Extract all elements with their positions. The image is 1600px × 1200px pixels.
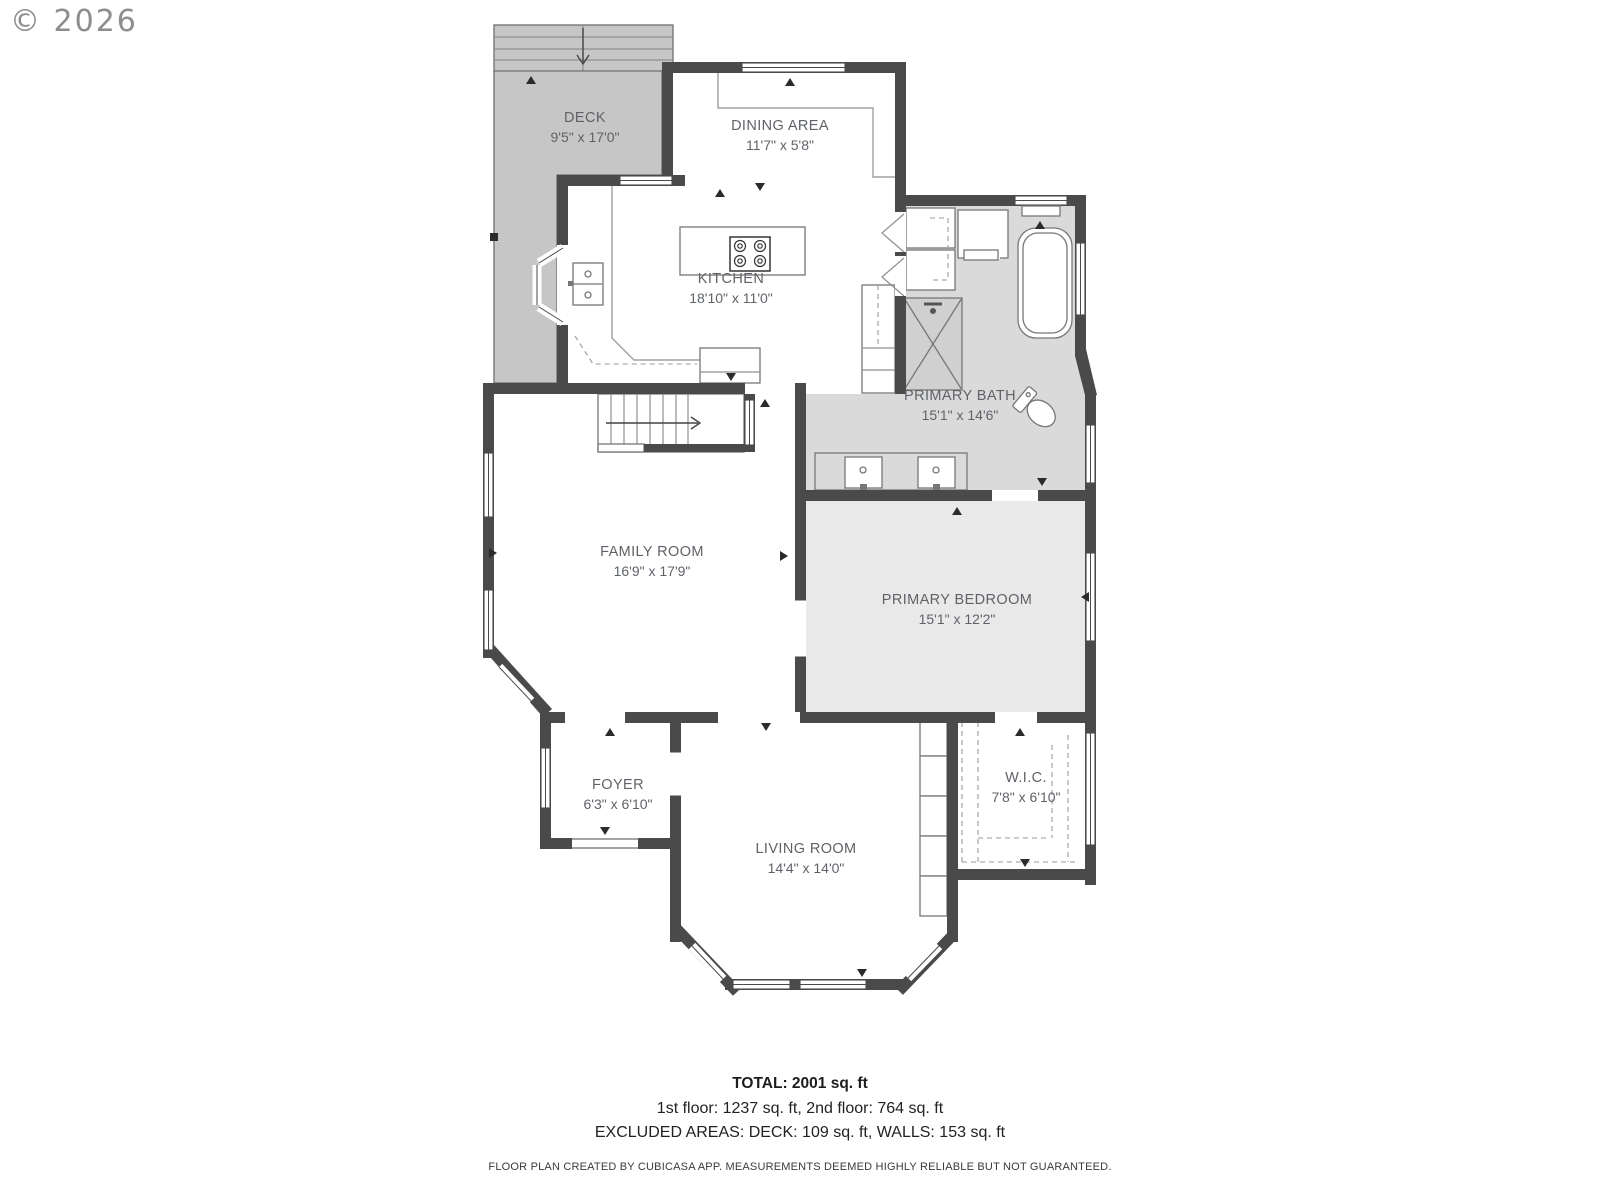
- room-name: DINING AREA: [731, 118, 829, 134]
- total-area: TOTAL: 2001 sq. ft: [0, 1075, 1600, 1093]
- window: [1015, 196, 1067, 216]
- foyer-opening: [565, 712, 625, 723]
- door-marker-icon: [605, 728, 615, 736]
- room-name: PRIMARY BATH: [904, 388, 1016, 404]
- stove-icon: [730, 237, 770, 271]
- door-marker-icon: [715, 189, 725, 197]
- room-name: FAMILY ROOM: [600, 544, 704, 560]
- door-marker-icon: [780, 551, 788, 561]
- excluded-areas: EXCLUDED AREAS: DECK: 109 sq. ft, WALLS:…: [0, 1124, 1600, 1142]
- living-room-shelves: [920, 716, 947, 916]
- room-label-bedroom: PRIMARY BEDROOM 15'1" x 12'2": [882, 592, 1033, 627]
- window: [1076, 243, 1085, 315]
- window: [800, 980, 866, 989]
- door-marker-icon: [1020, 859, 1030, 867]
- door-marker-icon: [857, 969, 867, 977]
- window: [733, 980, 790, 989]
- room-dims: 15'1" x 14'6": [904, 407, 1016, 423]
- front-door: [572, 838, 638, 849]
- room-label-foyer: FOYER 6'3" x 6'10": [584, 777, 653, 812]
- window: [620, 176, 672, 185]
- room-label-deck: DECK 9'5" x 17'0": [551, 110, 620, 145]
- shower-icon: [904, 298, 962, 390]
- deck-post: [490, 233, 498, 241]
- room-dims: 7'8" x 6'10": [992, 789, 1061, 805]
- deck-area: [490, 25, 673, 383]
- floor-areas: 1st floor: 1237 sq. ft, 2nd floor: 764 s…: [0, 1100, 1600, 1118]
- window: [1086, 733, 1095, 845]
- wic-door-opening: [995, 712, 1037, 723]
- area-summary: TOTAL: 2001 sq. ft 1st floor: 1237 sq. f…: [0, 1075, 1600, 1148]
- window: [692, 946, 723, 979]
- room-dims: 18'10" x 11'0": [689, 290, 773, 306]
- floor-plan-drawing: [0, 0, 1600, 1200]
- room-label-wic: W.I.C. 7'8" x 6'10": [992, 770, 1061, 805]
- room-name: FOYER: [584, 777, 653, 793]
- stair-side-window: [745, 400, 754, 445]
- bath-door-opening: [992, 490, 1038, 501]
- room-label-kitchen: KITCHEN 18'10" x 11'0": [689, 271, 773, 306]
- living-room-opening: [718, 712, 800, 723]
- window: [541, 748, 550, 808]
- room-dims: 9'5" x 17'0": [551, 129, 620, 145]
- kitchen-sink-icon: [564, 263, 603, 305]
- disclaimer-text: FLOOR PLAN CREATED BY CUBICASA APP. MEAS…: [0, 1161, 1600, 1173]
- room-label-living: LIVING ROOM 14'4" x 14'0": [755, 841, 856, 876]
- foyer-living-opening: [670, 752, 681, 796]
- bedroom-opening: [795, 600, 806, 657]
- room-label-bath: PRIMARY BATH 15'1" x 14'6": [904, 388, 1016, 423]
- bathtub-icon: [1018, 228, 1072, 338]
- room-name: W.I.C.: [992, 770, 1061, 786]
- door-marker-icon: [600, 827, 610, 835]
- stair-railing: [598, 444, 644, 452]
- pantry-cabinet: [862, 285, 895, 393]
- door-marker-icon: [755, 183, 765, 191]
- family-room-stairs: [598, 394, 744, 452]
- room-dims: 15'1" x 12'2": [882, 611, 1033, 627]
- stairs-up-arrow-icon: [606, 417, 700, 429]
- room-dims: 16'9" x 17'9": [600, 563, 704, 579]
- room-dims: 11'7" x 5'8": [731, 137, 829, 153]
- window: [1086, 425, 1095, 483]
- window: [484, 590, 493, 650]
- room-name: DECK: [551, 110, 620, 126]
- room-dims: 14'4" x 14'0": [755, 860, 856, 876]
- room-name: LIVING ROOM: [755, 841, 856, 857]
- closet-shelving: [920, 716, 1078, 916]
- room-label-family: FAMILY ROOM 16'9" x 17'9": [600, 544, 704, 579]
- door-marker-icon: [760, 399, 770, 407]
- window: [484, 453, 493, 517]
- door-marker-icon: [761, 723, 771, 731]
- room-dims: 6'3" x 6'10": [584, 796, 653, 812]
- closet-shelf: [964, 250, 998, 260]
- room-label-dining: DINING AREA 11'7" x 5'8": [731, 118, 829, 153]
- door-marker-icon: [785, 78, 795, 86]
- floor-plan-page: © 2026: [0, 0, 1600, 1200]
- window: [742, 63, 845, 72]
- room-name: KITCHEN: [689, 271, 773, 287]
- room-name: PRIMARY BEDROOM: [882, 592, 1033, 608]
- door-marker-icon: [1015, 728, 1025, 736]
